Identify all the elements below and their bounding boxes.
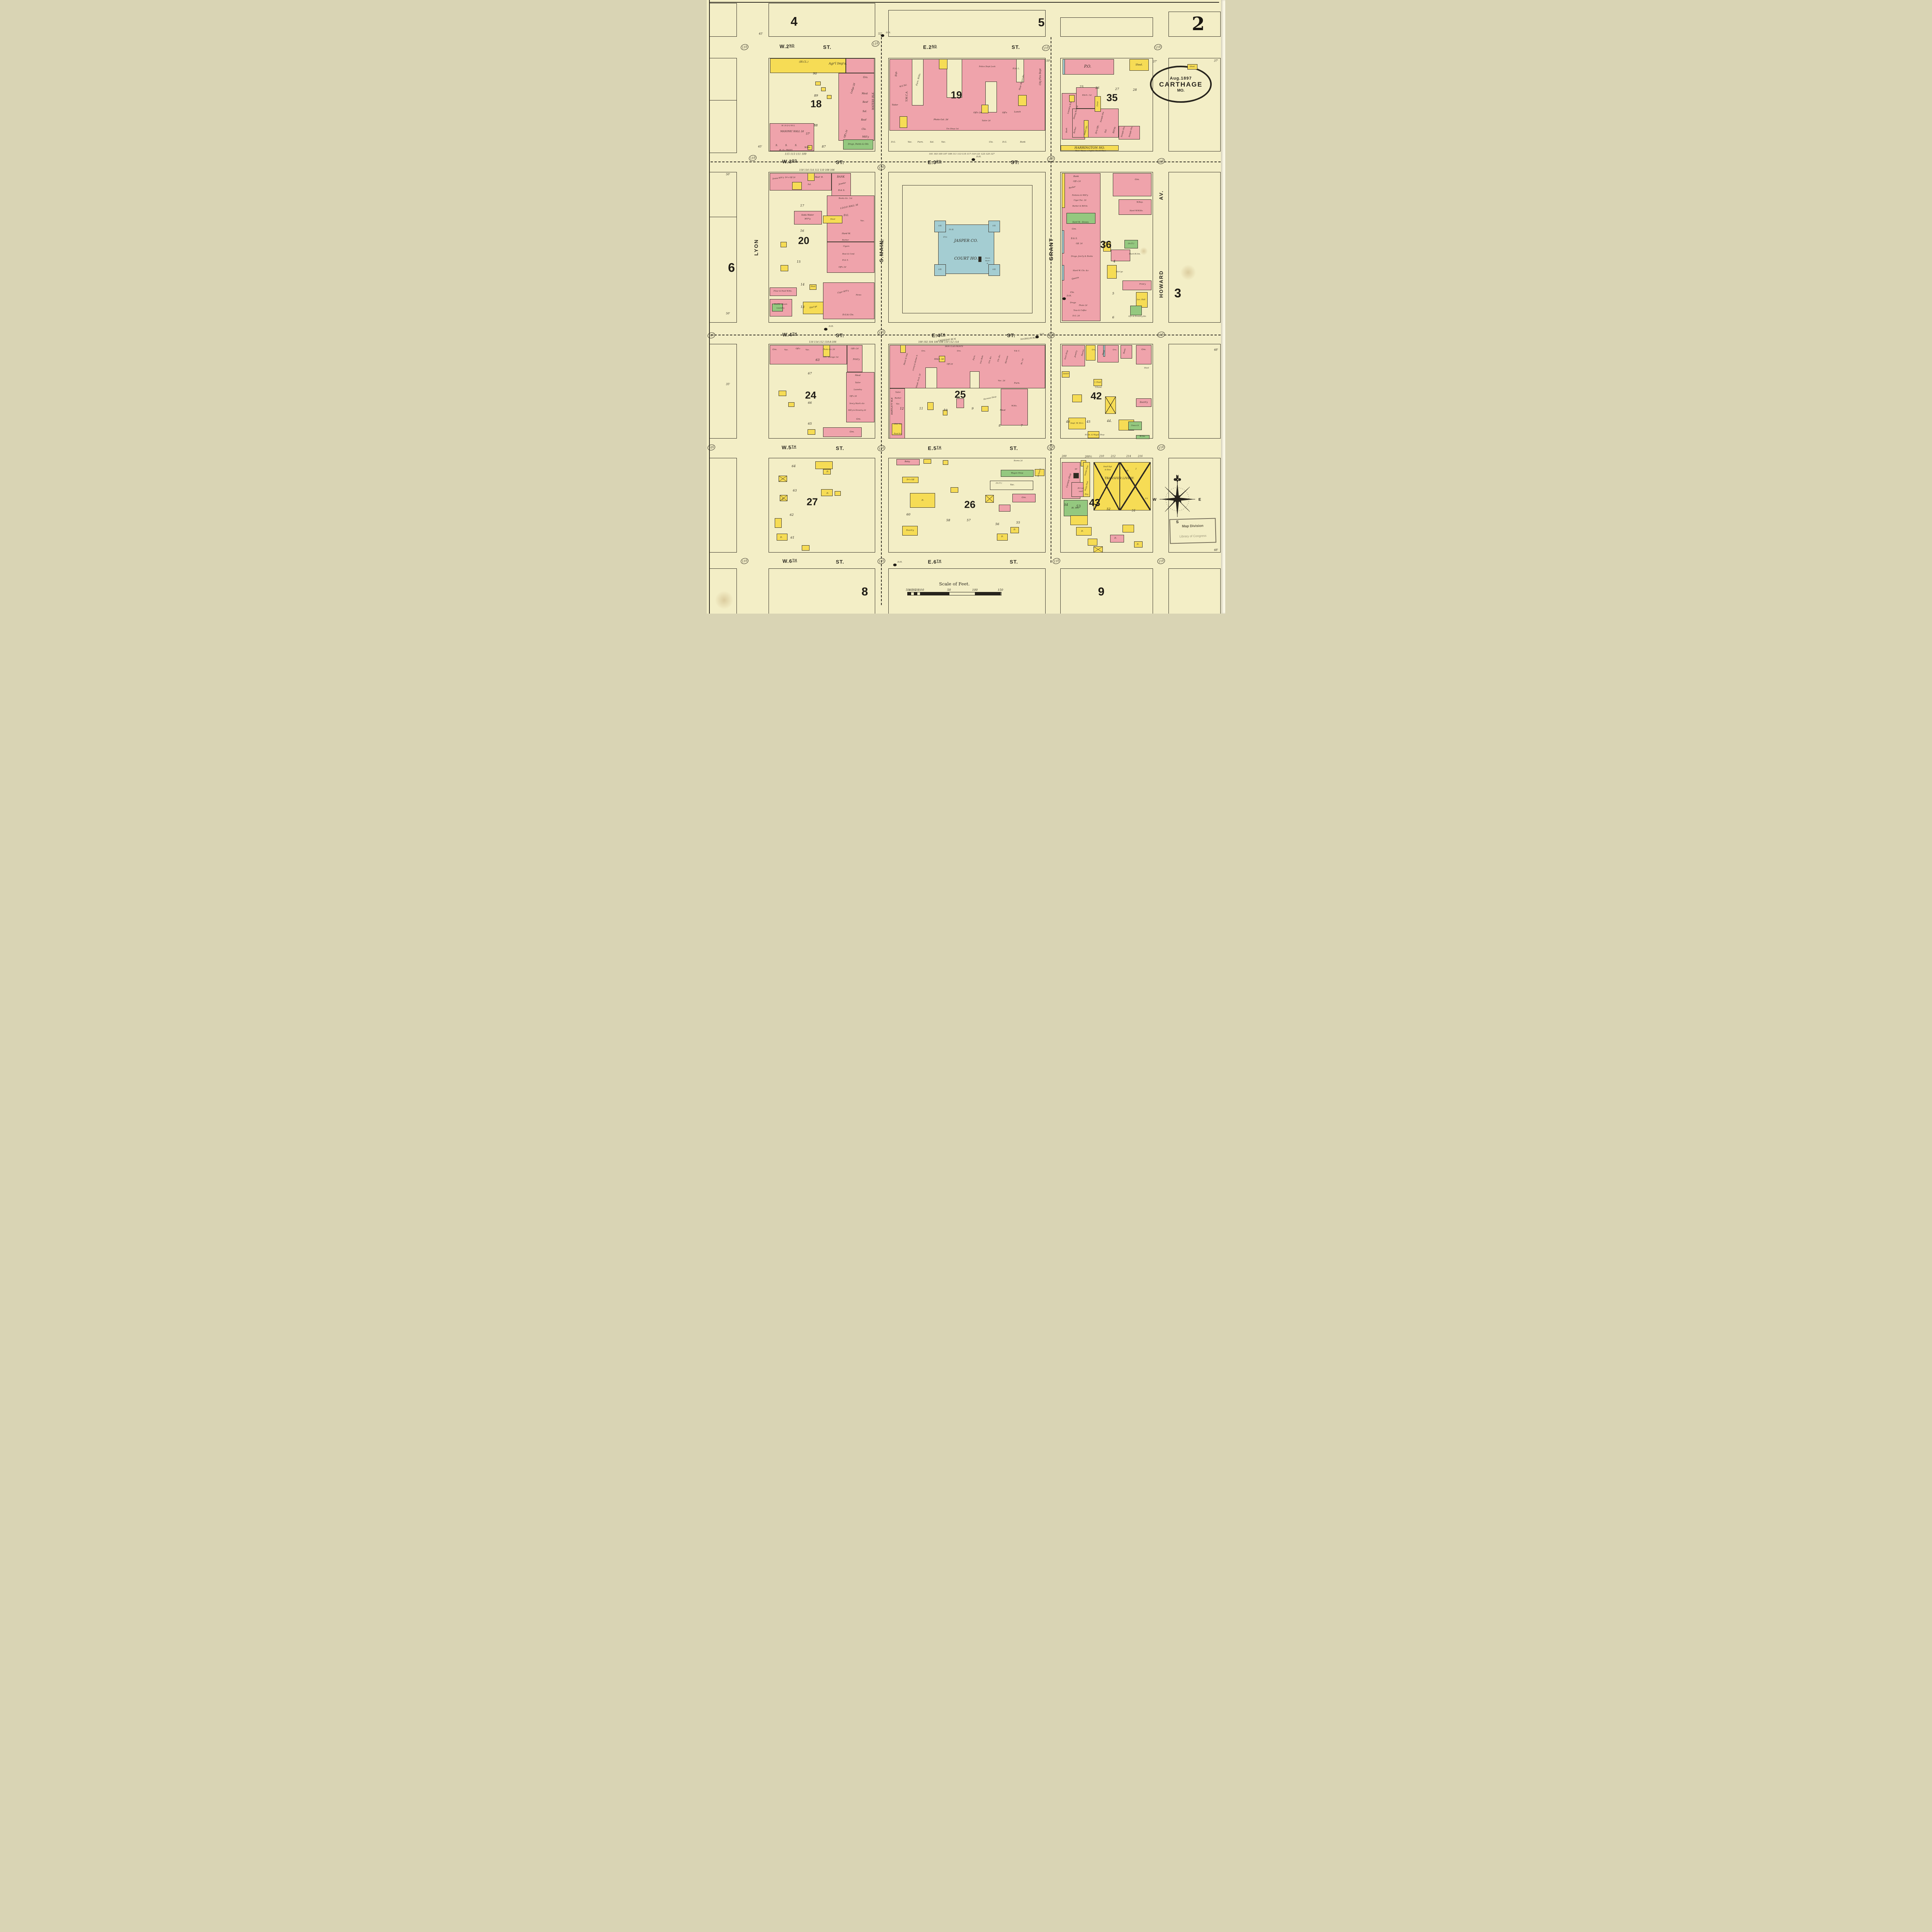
block-19: Exp.W.U.Tel.Y.M.C.A.Furn. W.Ho.TailorPol… — [888, 58, 1046, 151]
street-label-2nd-east-st: ST. — [1012, 44, 1020, 50]
block-divider — [709, 217, 736, 217]
building-label: Hard W. — [842, 233, 850, 235]
building-label: Clo. — [989, 141, 993, 144]
block-number-36: 36 — [1100, 239, 1112, 251]
building-label: Cigars — [843, 245, 850, 247]
building-label: Off's 2d — [973, 112, 982, 114]
building-label: WATERS BLK. — [872, 92, 875, 110]
building-footprint — [1094, 546, 1103, 553]
block-number-24: 24 — [805, 389, 816, 401]
map-annotation: 54 — [1064, 503, 1068, 507]
building-footprint — [1088, 539, 1097, 546]
building-label: News — [856, 294, 861, 296]
building-label: Off's 2d — [838, 266, 846, 268]
building-label: Gro. — [1141, 349, 1146, 351]
map-annotation: 13 — [801, 306, 804, 309]
map-annotation: 35' — [726, 383, 730, 386]
block-number-18: 18 — [811, 98, 822, 110]
building-footprint — [981, 406, 988, 412]
building-label: Gro. — [922, 350, 926, 352]
building-label: Stor'ge — [1116, 271, 1123, 273]
building-label: I. Feed — [1095, 381, 1101, 383]
building-label: Wagon Shop — [1011, 472, 1023, 474]
building-footprint — [821, 87, 826, 91]
building-footprint — [792, 182, 802, 190]
street-label-lyon: LYON — [753, 239, 759, 256]
building-footprint — [1063, 59, 1065, 75]
building-label: Books &c. 1st — [838, 197, 852, 199]
block-divider — [709, 100, 736, 100]
building-footprint — [1097, 345, 1119, 362]
block-number-25: 25 — [955, 389, 966, 401]
block-number-8: 8 — [862, 585, 868, 599]
building-footprint — [1069, 95, 1075, 102]
building-label: Photo &c 2d — [823, 349, 835, 350]
building-label: Gro. — [856, 418, 861, 421]
street-label-grant: GRANT — [1048, 238, 1054, 261]
hydrant-dot — [893, 564, 897, 566]
building-label: Dr's Off — [906, 479, 914, 481]
block-number-42: 42 — [1091, 390, 1102, 402]
far-left-row5 — [709, 458, 737, 553]
building-label: Gro. Storage 1st — [823, 356, 838, 358]
building-label: Laundry — [854, 389, 862, 391]
block-18: (IR.CL.)Agr'l Imp's.Gro.Lodge 2dMeatRest… — [769, 58, 875, 151]
building-label: Sal. — [862, 111, 867, 113]
map-annotation: 8"W.P. — [882, 239, 885, 246]
building-label: Off's — [1002, 112, 1007, 114]
map-annotation: 87 — [822, 145, 826, 148]
map-annotation: 212 — [1111, 455, 1116, 458]
block-20: Dress M'k'yDr's Off 2dSal.Rest' R.BANKJe… — [769, 172, 875, 323]
building-label: Meat — [855, 375, 861, 377]
street-width-marker: 110 — [1153, 43, 1162, 51]
building-label: 'ELITE' Steam — [774, 303, 787, 305]
building-label: Off. 2d — [1076, 243, 1082, 245]
building-label: Furn. — [1014, 383, 1020, 385]
hydrant-dot — [972, 158, 975, 161]
map-annotation: 50' — [726, 173, 730, 176]
street-label-4th-east: E.4TH — [932, 333, 945, 338]
map-annotation: 118 116 114 112 110 108 106 — [799, 169, 835, 172]
building-label: Off. — [1126, 471, 1129, 473]
building-footprint — [1122, 525, 1134, 532]
building-label: Gro. — [1113, 349, 1117, 351]
building-label: Vac. — [806, 349, 810, 351]
street-width-marker: 110 — [1156, 157, 1165, 165]
map-annotation: 65 — [808, 422, 812, 425]
building-label: Board'g — [906, 529, 914, 531]
street-label-4th-west-st: ST. — [836, 333, 844, 338]
map-annotation: 56 — [995, 523, 999, 526]
street-label-3rd-west: W.3RD — [782, 159, 798, 165]
street-label-4th-west: W.4TH — [782, 332, 797, 338]
compass-w: W — [1153, 498, 1156, 502]
building-label: Shed — [811, 286, 815, 287]
street-width-marker: 110 — [748, 154, 757, 162]
building-label: Shed — [830, 218, 835, 220]
building-label: Rest' — [861, 119, 867, 121]
hydrant-dot — [824, 328, 828, 331]
building-footprint — [781, 265, 788, 271]
building-label: Vac. 2d — [998, 380, 1005, 382]
building-label: Tailor — [855, 382, 861, 384]
map-annotation: 88 — [814, 124, 818, 127]
building-label: Rest' — [862, 101, 868, 104]
building-footprint — [781, 242, 787, 247]
building-label: D. — [827, 493, 829, 495]
map-annotation: 27 — [1115, 88, 1119, 91]
building-footprint — [900, 116, 907, 128]
map-annotation: 52' — [878, 32, 883, 35]
building-label: Gro. — [863, 77, 868, 79]
building-footprint — [1062, 230, 1064, 253]
far-left-bottom — [709, 568, 737, 614]
map-annotation: 210 — [1099, 455, 1104, 458]
building-label: D. — [782, 499, 784, 501]
map-annotation: 64 — [792, 465, 796, 468]
map-annotation: 200½ — [1085, 456, 1092, 458]
building-label: 3½-B. — [949, 230, 954, 231]
building-label: H.& L. — [1013, 68, 1020, 70]
map-annotation: 37' — [1153, 60, 1157, 63]
map-annotation: 6 — [1112, 316, 1114, 319]
building-footprint — [939, 59, 947, 69]
building-label: Shed. — [1190, 66, 1195, 68]
map-annotation: 57' — [806, 133, 810, 135]
building-label: Hard W., Stoves. — [1072, 221, 1089, 223]
building-label: B.& S. — [842, 259, 849, 261]
building-label: Photo 2d — [1079, 304, 1087, 306]
building-footprint — [927, 402, 934, 410]
block-number-9: 9 — [1098, 585, 1105, 599]
map-annotation: D.H. — [898, 561, 903, 564]
building-label: Mill'y & Dressm'g 2d — [848, 410, 866, 412]
building-footprint — [770, 345, 847, 364]
map-annotation: McGRILLIS BLK — [1020, 337, 1037, 341]
building-label: Steam — [985, 257, 990, 259]
building-label: Impl. W. Ho's — [1070, 422, 1083, 424]
street-width-marker: 105 — [707, 444, 716, 451]
street-label-4th-east-st: ST. — [1007, 333, 1015, 338]
building-label: Off's & Dressm'g Rm — [1128, 316, 1146, 318]
building-footprint — [1121, 345, 1132, 359]
map-annotation: 116 114 112 110-8-106 — [809, 341, 837, 344]
map-annotation: 216 — [1138, 455, 1143, 458]
map-annotation: O.H. — [1040, 333, 1044, 336]
building-label: Gro. — [1022, 497, 1026, 499]
sanborn-map-sheet: 2 Aug.1897 CARTHAGE MO. Map Division Lib… — [707, 0, 1225, 614]
map-annotation: 46 — [1066, 420, 1070, 423]
building-label: Sal. — [930, 141, 934, 144]
map-annotation: 90 — [813, 72, 817, 75]
building-footprint — [999, 505, 1010, 512]
building-label: D. — [1137, 544, 1139, 546]
street-width-marker: 120 — [877, 163, 886, 171]
building-label: Heat: Steam ~ Lights: Gas & Elect. — [1075, 151, 1106, 153]
building-label: Mill'y — [862, 136, 869, 138]
far-right-row2: Shed. — [1168, 58, 1221, 151]
building-label: Sal. — [808, 184, 811, 185]
building-label: Barber & Bill'ds — [1072, 205, 1087, 207]
building-label: Dr's Off 2d — [785, 177, 795, 179]
street-width-marker: 110 — [1156, 444, 1165, 451]
map-annotation: 26 — [1095, 87, 1099, 90]
building-label: D.G. — [891, 141, 896, 144]
building-label: Sew'g Mach's &c — [849, 403, 864, 405]
map-annotation: 11 — [919, 407, 923, 410]
building-label: (Old) Vac. — [894, 424, 902, 426]
building-label: (IR.CL.) — [799, 61, 808, 63]
building-label: Gro. — [1092, 349, 1096, 351]
building-label: 50' — [1075, 469, 1078, 471]
building-footprint — [1070, 515, 1088, 525]
block-number-35: 35 — [1107, 92, 1118, 104]
building-label: Hay — [1085, 494, 1088, 496]
building-label: Vac. — [941, 141, 946, 144]
building-label: Coop — [1097, 101, 1099, 106]
street-label-5th-west-st: ST. — [836, 446, 844, 451]
building-label: Police Dept Lock — [979, 66, 996, 68]
building-label: Off 2d — [947, 363, 953, 365]
building-label: D.G. 2d — [1073, 315, 1080, 317]
street-width-marker: 110 — [1046, 444, 1055, 451]
building-footprint — [779, 391, 786, 396]
building-label: HALL 3d — [934, 359, 944, 361]
street-width-marker: 110 — [1046, 332, 1055, 339]
map-annotation: 61 — [791, 536, 794, 539]
building-label: Bl.Sm. — [1140, 436, 1146, 438]
building-label: D. — [1014, 529, 1016, 531]
bottom-center — [888, 568, 1046, 614]
building-label: Drugs, Paints & Oils — [848, 143, 869, 145]
building-label: Kitch. 1st — [1082, 94, 1092, 96]
map-annotation: 57 — [967, 519, 971, 522]
building-label: Bank — [1066, 128, 1068, 133]
block-number-6: 6 — [728, 261, 735, 275]
far-left-row3: 6 — [709, 172, 737, 323]
building-label: Clo. — [862, 128, 866, 131]
building-label: Bl.Sm. & Wagon Shop — [1085, 435, 1104, 437]
building-footprint — [835, 491, 841, 496]
map-annotation: D.H. — [976, 156, 981, 158]
building-footprint — [985, 495, 994, 503]
map-annotation: D.H. — [886, 32, 891, 34]
building-label: Tailor 2d — [982, 120, 991, 122]
building-label: used — [1079, 491, 1083, 492]
building-label: Barber — [895, 397, 901, 399]
block-number-19: 19 — [951, 89, 962, 101]
building-label: Lec. Hall — [1137, 299, 1145, 301]
building-label: COURT HO. — [954, 257, 978, 261]
block-24: Gro.Vac.Off'sVac.Photo &c 2dGro. Storage… — [769, 344, 875, 439]
building-label: D. — [780, 537, 782, 539]
building-footprint — [1105, 396, 1116, 414]
block-number-43: 43 — [1089, 497, 1100, 509]
building-label: Photo Gal. 2d — [934, 119, 948, 121]
building-label: D. — [922, 500, 924, 502]
map-annotation: IR. CL. FRONT. — [779, 150, 793, 152]
block-26: BakyRooms 2dDr's OffD.Wagon Shop2d Hand … — [888, 458, 1046, 553]
street-label-5th-east-st: ST. — [1010, 446, 1018, 451]
street-label-3rd-east: E.3RD — [928, 160, 942, 165]
building-label: Cigar Fac. 2d — [1074, 199, 1087, 201]
building-label: Gro. — [772, 349, 777, 351]
street-label-6th-east: E.6TH — [928, 559, 941, 565]
map-annotation: 50' — [726, 312, 730, 315]
street-label-6th-west-st: ST. — [836, 559, 844, 565]
building-label: W.Ho. — [1012, 405, 1017, 407]
block-number-20: 20 — [798, 235, 810, 247]
far-right-row5 — [1168, 458, 1221, 553]
building-footprint — [815, 461, 833, 469]
building-footprint — [923, 459, 931, 464]
building-label: Shed — [1144, 367, 1149, 369]
map-annotation: 37' — [1214, 60, 1218, 62]
building-label: Tin Shop 1st — [946, 128, 959, 130]
building-label: Rest' R. — [815, 177, 823, 179]
map-annotation: 67 — [808, 372, 812, 375]
top-grant-howard — [1060, 17, 1153, 37]
map-annotation: 66 — [808, 401, 812, 405]
building-footprint — [815, 82, 821, 85]
map-annotation: 48' — [1214, 549, 1218, 551]
street-label-av: AV. — [1158, 190, 1164, 200]
building-footprint — [1062, 265, 1064, 281]
building-footprint — [823, 427, 862, 437]
building-label: Bank — [1020, 141, 1026, 144]
building-footprint — [970, 371, 980, 388]
building-label: Vac. — [1010, 484, 1015, 486]
map-annotation: 9 — [971, 407, 973, 410]
map-annotation: 4 — [1113, 260, 1115, 263]
hydrant-dot — [1063, 298, 1066, 300]
far-right-row4 — [1168, 344, 1221, 439]
building-label: 4-B. — [992, 269, 996, 271]
map-annotation: IRON CLAD FRONTS — [945, 346, 963, 348]
building-label: W.Rep. — [1136, 201, 1143, 203]
building-label: D. — [1114, 537, 1117, 540]
building-label: B.& S. — [838, 190, 845, 192]
building-label: S'h'e — [943, 236, 947, 238]
building-label: Lunch — [1014, 111, 1020, 114]
map-annotation: 8 — [998, 424, 1000, 427]
block-number-26: 26 — [964, 499, 976, 511]
far-left-row2 — [709, 58, 737, 153]
building-footprint — [1086, 345, 1095, 361]
building-footprint — [788, 402, 794, 407]
building-label: Notions & Mill'y — [1072, 194, 1088, 196]
building-label: D. — [827, 471, 829, 473]
block-number-4: 4 — [791, 15, 798, 29]
building-footprint — [802, 545, 810, 551]
map-annotation: D.H. — [1067, 295, 1072, 298]
building-footprint — [1130, 306, 1142, 315]
building-label: Hard W.W.Ho. — [1129, 210, 1143, 212]
building-label: Gro. — [1135, 179, 1139, 181]
building-label: S. — [795, 145, 797, 147]
building-label: Heat'r — [985, 260, 990, 262]
map-annotation: 200 — [1062, 455, 1066, 458]
building-footprint — [838, 73, 874, 141]
building-label: D. — [1001, 536, 1003, 538]
building-footprint — [981, 105, 988, 113]
building-label: Hard W. Clo. &c — [1073, 270, 1089, 272]
building-footprint — [827, 242, 874, 273]
building-label: Small Hyd. — [1103, 466, 1112, 468]
building-label: Flour & Feed W.Ho. — [774, 290, 792, 292]
block-42: Paint ShopJewelryRacketGro.MeatGro.Boots… — [1060, 344, 1153, 439]
building-footprint — [1107, 265, 1117, 279]
building-label: Clo. — [1070, 292, 1075, 294]
building-label: BANK — [837, 176, 845, 179]
building-footprint — [775, 518, 782, 528]
building-label: Furn. — [917, 141, 923, 144]
building-label: Gro. — [850, 431, 854, 434]
building-footprint — [1110, 535, 1124, 543]
map-annotation: 45 — [1087, 420, 1090, 423]
street-label-2nd-west-st: ST. — [823, 44, 832, 50]
street-width-marker: 115 — [1156, 331, 1165, 338]
building-label: BARTLETT BLK — [891, 398, 894, 415]
street-dashed-line — [1051, 37, 1051, 563]
block-43: Cornice Shop50'B'lr notusedBl. Sm.Marble… — [1060, 458, 1153, 553]
map-annotation: 101 103 105 107 109 111 113 115 117 119 … — [929, 153, 995, 156]
building-footprint — [1073, 473, 1079, 478]
building-label: D. — [1081, 531, 1083, 533]
building-label: Soda Water — [801, 214, 814, 217]
map-annotation: 28 — [1133, 88, 1137, 92]
building-label: Vac. — [861, 220, 865, 222]
street-label-6th-west: W.6TH — [782, 558, 797, 564]
building-label: & Hose — [1105, 469, 1111, 471]
far-right-row3: 3 — [1168, 172, 1221, 323]
building-footprint — [938, 224, 994, 274]
map-annotation: 45' — [758, 145, 762, 148]
building-footprint — [951, 487, 958, 493]
building-label: Hard Bl.Sm. — [1129, 253, 1141, 255]
building-label: Off's 2d — [1073, 180, 1081, 182]
block-number-3: 3 — [1174, 286, 1181, 301]
building-label: Print'y — [853, 359, 859, 361]
far-left-top — [709, 3, 737, 37]
street-dashed-line — [881, 37, 882, 605]
building-label: D.G.& Clo. — [842, 314, 854, 316]
building-label: Meat — [862, 93, 868, 95]
building-label: TRANSFER LIVERY. — [1104, 477, 1134, 480]
building-label: Vac. — [784, 349, 789, 351]
street-label-2nd-west: W.2ND — [780, 44, 795, 49]
building-footprint — [978, 257, 981, 262]
building-label: S. — [776, 145, 778, 147]
map-annotation: 44. — [1107, 420, 1112, 423]
building-footprint — [1062, 173, 1065, 208]
building-label: W I N D O W S. — [781, 126, 795, 128]
block-4: 4 — [769, 3, 875, 37]
building-label: Awnb'r — [1063, 374, 1069, 376]
map-annotation: 15 — [797, 260, 801, 264]
map-annotation: 51 — [1132, 509, 1136, 512]
map-annotation: 63 — [793, 489, 797, 492]
street-width-marker: 110 — [877, 444, 886, 452]
map-annotation: 7 — [1020, 424, 1022, 427]
building-label: Off's 2d — [851, 348, 859, 350]
building-label: M'F'y — [804, 218, 811, 221]
court-square: JASPER CO.COURT HO.4-B.4-B.4-B.4-B.3½-B.… — [888, 172, 1046, 323]
map-annotation: 14 — [801, 283, 804, 286]
building-label: W.Ho. — [804, 147, 811, 149]
building-label: D.G. — [1002, 141, 1007, 144]
